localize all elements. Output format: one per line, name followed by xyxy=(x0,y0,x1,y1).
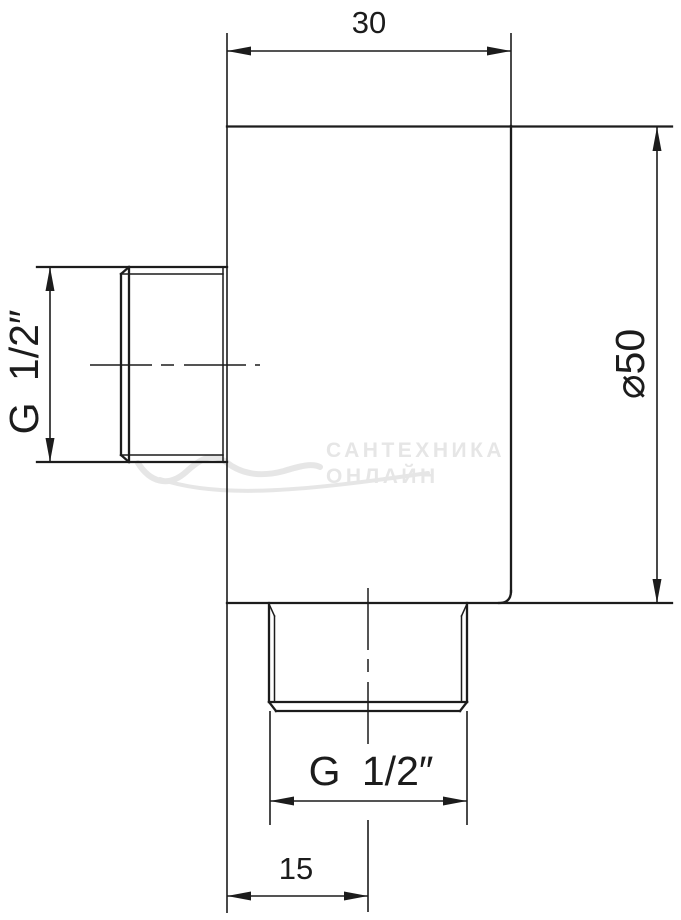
watermark: САНТЕХНИКА ОНЛАЙН xyxy=(138,439,505,491)
watermark-line1: САНТЕХНИКА xyxy=(326,439,505,462)
bottom-connector-thread-leadin-left xyxy=(270,605,275,616)
dimension-g12-bottom-label: G 1/2″ xyxy=(309,748,434,794)
dimension-thread-left: G 1/2″ xyxy=(1,267,55,462)
dimension-offset-15: 15 xyxy=(227,851,368,901)
watermark-line2: ОНЛАЙН xyxy=(326,464,439,488)
arrowhead-top xyxy=(46,267,55,291)
dimension-phi50-label: ⌀50 xyxy=(607,329,653,399)
fitting-body xyxy=(227,33,672,913)
arrowhead-left xyxy=(227,47,251,56)
bottom-connector-chamfer-right xyxy=(460,702,467,711)
bottom-connector-thread-leadin-right xyxy=(462,605,467,616)
arrowhead-right xyxy=(443,797,467,806)
arrowhead-bottom xyxy=(653,579,662,603)
body-corner-fillet xyxy=(499,591,511,603)
technical-drawing-canvas: САНТЕХНИКА ОНЛАЙН xyxy=(0,0,681,920)
arrowhead-right xyxy=(487,47,511,56)
bottom-connector-chamfer-left xyxy=(269,702,276,711)
arrowhead-right xyxy=(344,892,368,901)
arrowhead-top xyxy=(653,127,662,151)
dimension-width-30: 30 xyxy=(227,5,511,56)
arrowhead-left xyxy=(227,892,251,901)
arrowhead-left xyxy=(270,797,294,806)
product-dimension-drawing: САНТЕХНИКА ОНЛАЙН xyxy=(0,0,681,920)
dimension-diameter-50: ⌀50 xyxy=(607,127,662,603)
dimension-15-label: 15 xyxy=(279,851,313,886)
dimension-g12-left-label: G 1/2″ xyxy=(1,310,47,435)
arrowhead-bottom xyxy=(46,438,55,462)
dimension-30-label: 30 xyxy=(352,5,386,40)
